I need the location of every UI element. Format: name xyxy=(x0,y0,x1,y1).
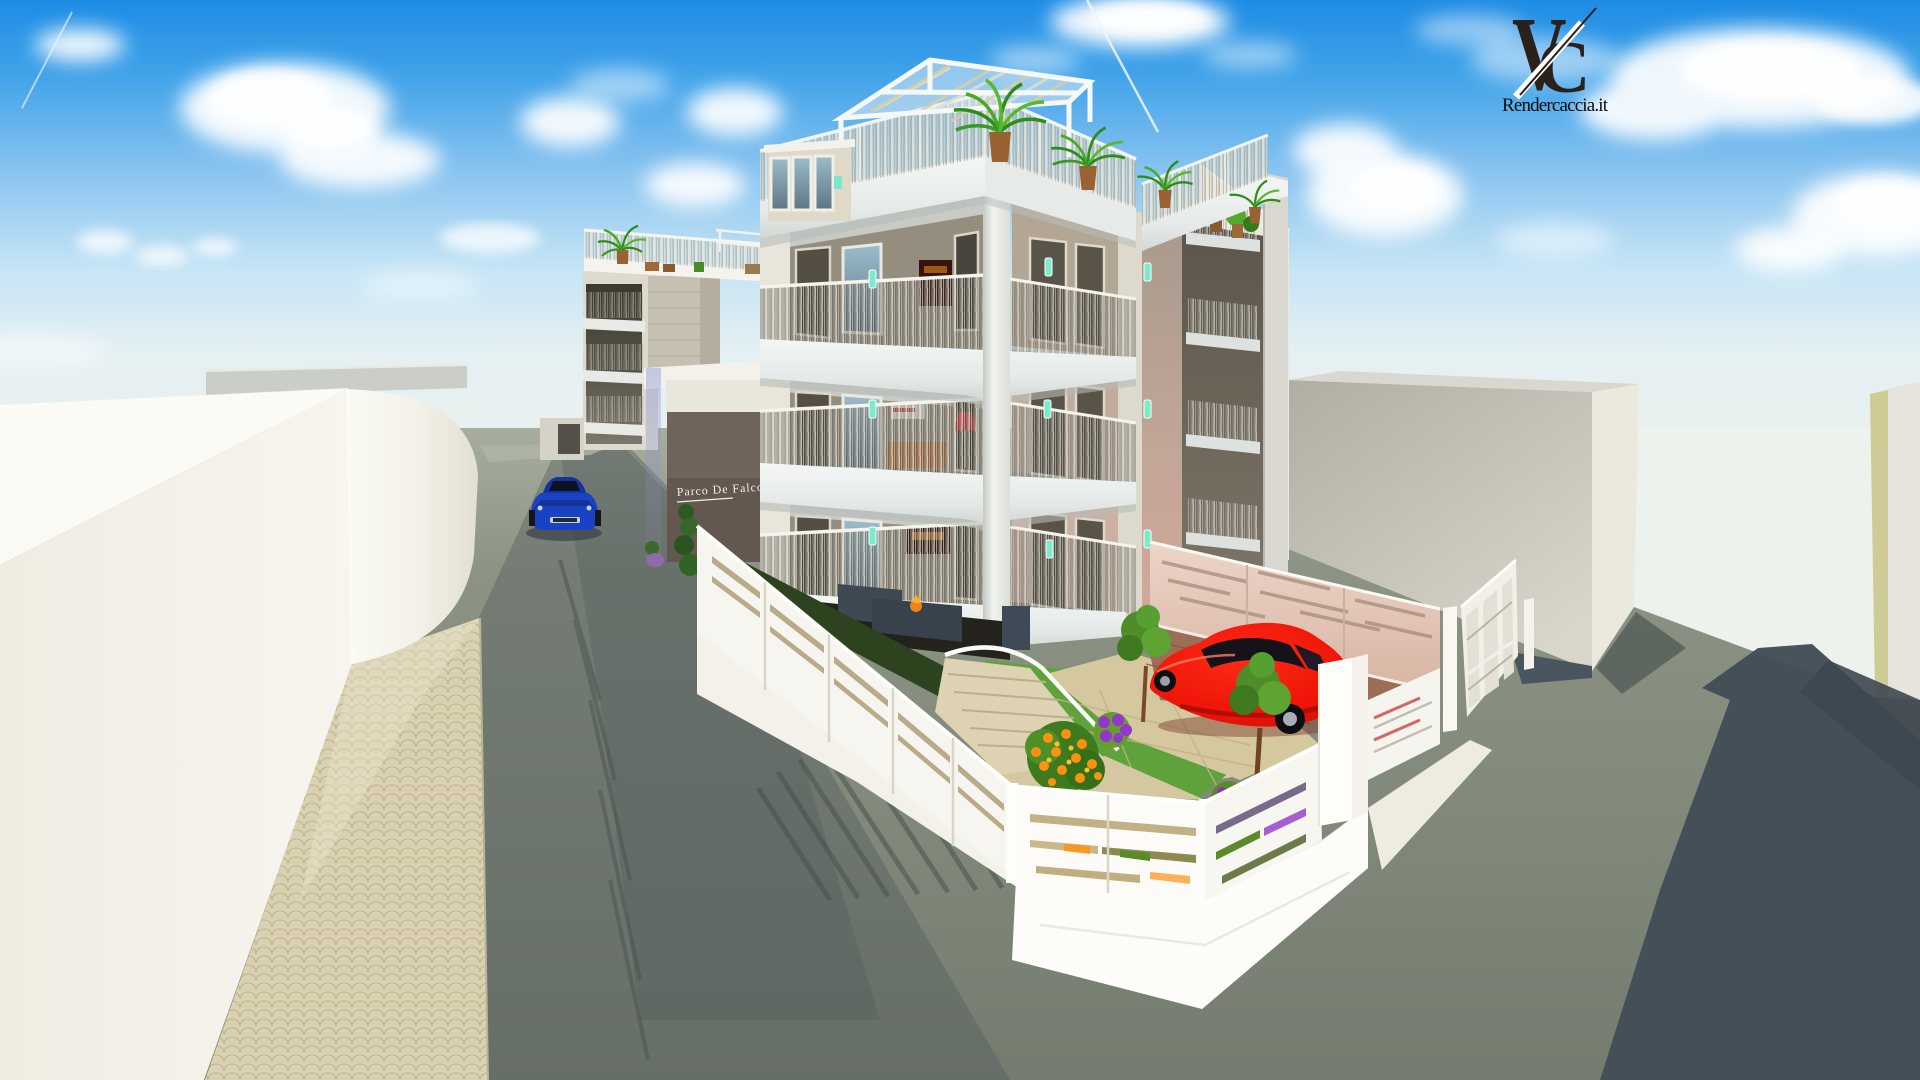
svg-text:Rendercaccia.it: Rendercaccia.it xyxy=(1502,95,1609,116)
